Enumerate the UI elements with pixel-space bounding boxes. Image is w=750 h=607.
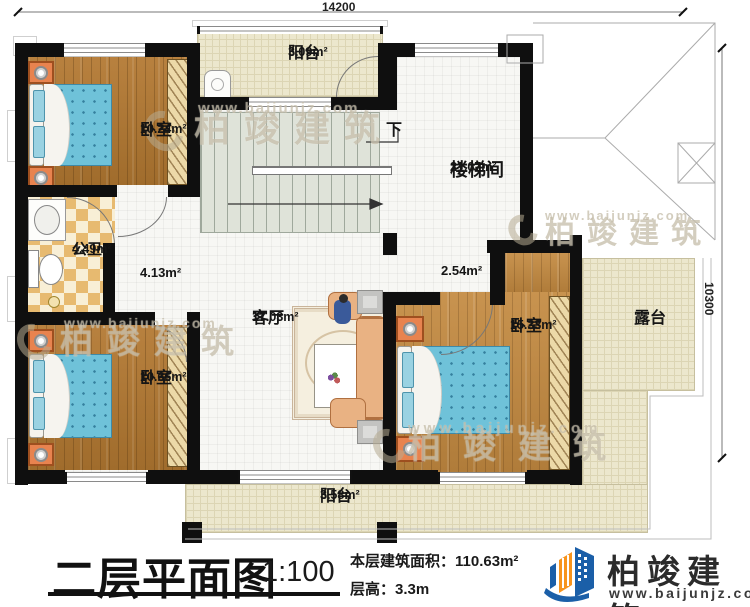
dimension-top: 14200 bbox=[322, 0, 355, 14]
dimension-right: 10300 bbox=[702, 282, 716, 315]
lamp-icon bbox=[34, 448, 48, 462]
person-figure bbox=[334, 300, 351, 324]
person-head bbox=[339, 294, 348, 303]
sink-icon bbox=[34, 205, 60, 235]
column bbox=[377, 522, 397, 543]
wall-segment bbox=[352, 470, 438, 484]
stair-handrail bbox=[252, 166, 392, 175]
wall-segment bbox=[490, 253, 505, 305]
pillow bbox=[402, 352, 414, 388]
balcony-bottom-floor bbox=[185, 484, 648, 533]
wall-segment bbox=[383, 233, 397, 255]
wall-segment bbox=[168, 185, 200, 197]
balcony-railing bbox=[197, 26, 383, 34]
company-logo-icon bbox=[543, 540, 605, 602]
bedroom-right-floor bbox=[505, 253, 570, 292]
window bbox=[65, 472, 148, 484]
title-underline bbox=[48, 592, 340, 596]
toilet-tank bbox=[28, 250, 39, 288]
table-flowers-icon bbox=[326, 372, 342, 386]
page-title: 二层平面图 bbox=[52, 543, 277, 607]
wall-segment bbox=[15, 470, 65, 484]
floor-height-line: 层高：3.3m bbox=[350, 578, 429, 599]
pillow bbox=[33, 397, 45, 430]
sliding-door bbox=[238, 470, 352, 484]
side-table bbox=[357, 290, 383, 314]
column bbox=[182, 522, 202, 543]
nightstand bbox=[28, 443, 54, 466]
nightstand bbox=[28, 61, 54, 84]
washing-machine-door bbox=[211, 78, 224, 91]
company-website: www.baijunjz.com bbox=[609, 585, 750, 601]
pillow bbox=[33, 126, 45, 158]
floor-area-line: 本层建筑面积：110.63m² bbox=[350, 550, 518, 571]
floor-plan-canvas: 柏竣建筑 www.baijunjz.com 柏竣建筑 www.baijunjz.… bbox=[0, 0, 750, 607]
window bbox=[62, 43, 147, 57]
wall-segment bbox=[15, 43, 62, 57]
floor-drain-icon bbox=[48, 296, 60, 308]
lamp-icon bbox=[34, 66, 48, 80]
lamp-icon bbox=[34, 171, 48, 185]
wall-segment bbox=[383, 43, 413, 57]
wall-segment bbox=[520, 43, 533, 243]
wall-segment bbox=[15, 185, 117, 197]
wall-segment bbox=[15, 43, 28, 485]
toilet-icon bbox=[39, 254, 63, 285]
pillow bbox=[33, 90, 45, 122]
wall-segment bbox=[148, 470, 238, 484]
scale-label: 1:100 bbox=[262, 556, 335, 589]
nightstand bbox=[396, 316, 424, 342]
pillow bbox=[33, 360, 45, 393]
window bbox=[413, 43, 500, 57]
lamp-icon bbox=[403, 322, 417, 336]
wall-segment bbox=[383, 292, 440, 305]
window bbox=[438, 472, 527, 484]
